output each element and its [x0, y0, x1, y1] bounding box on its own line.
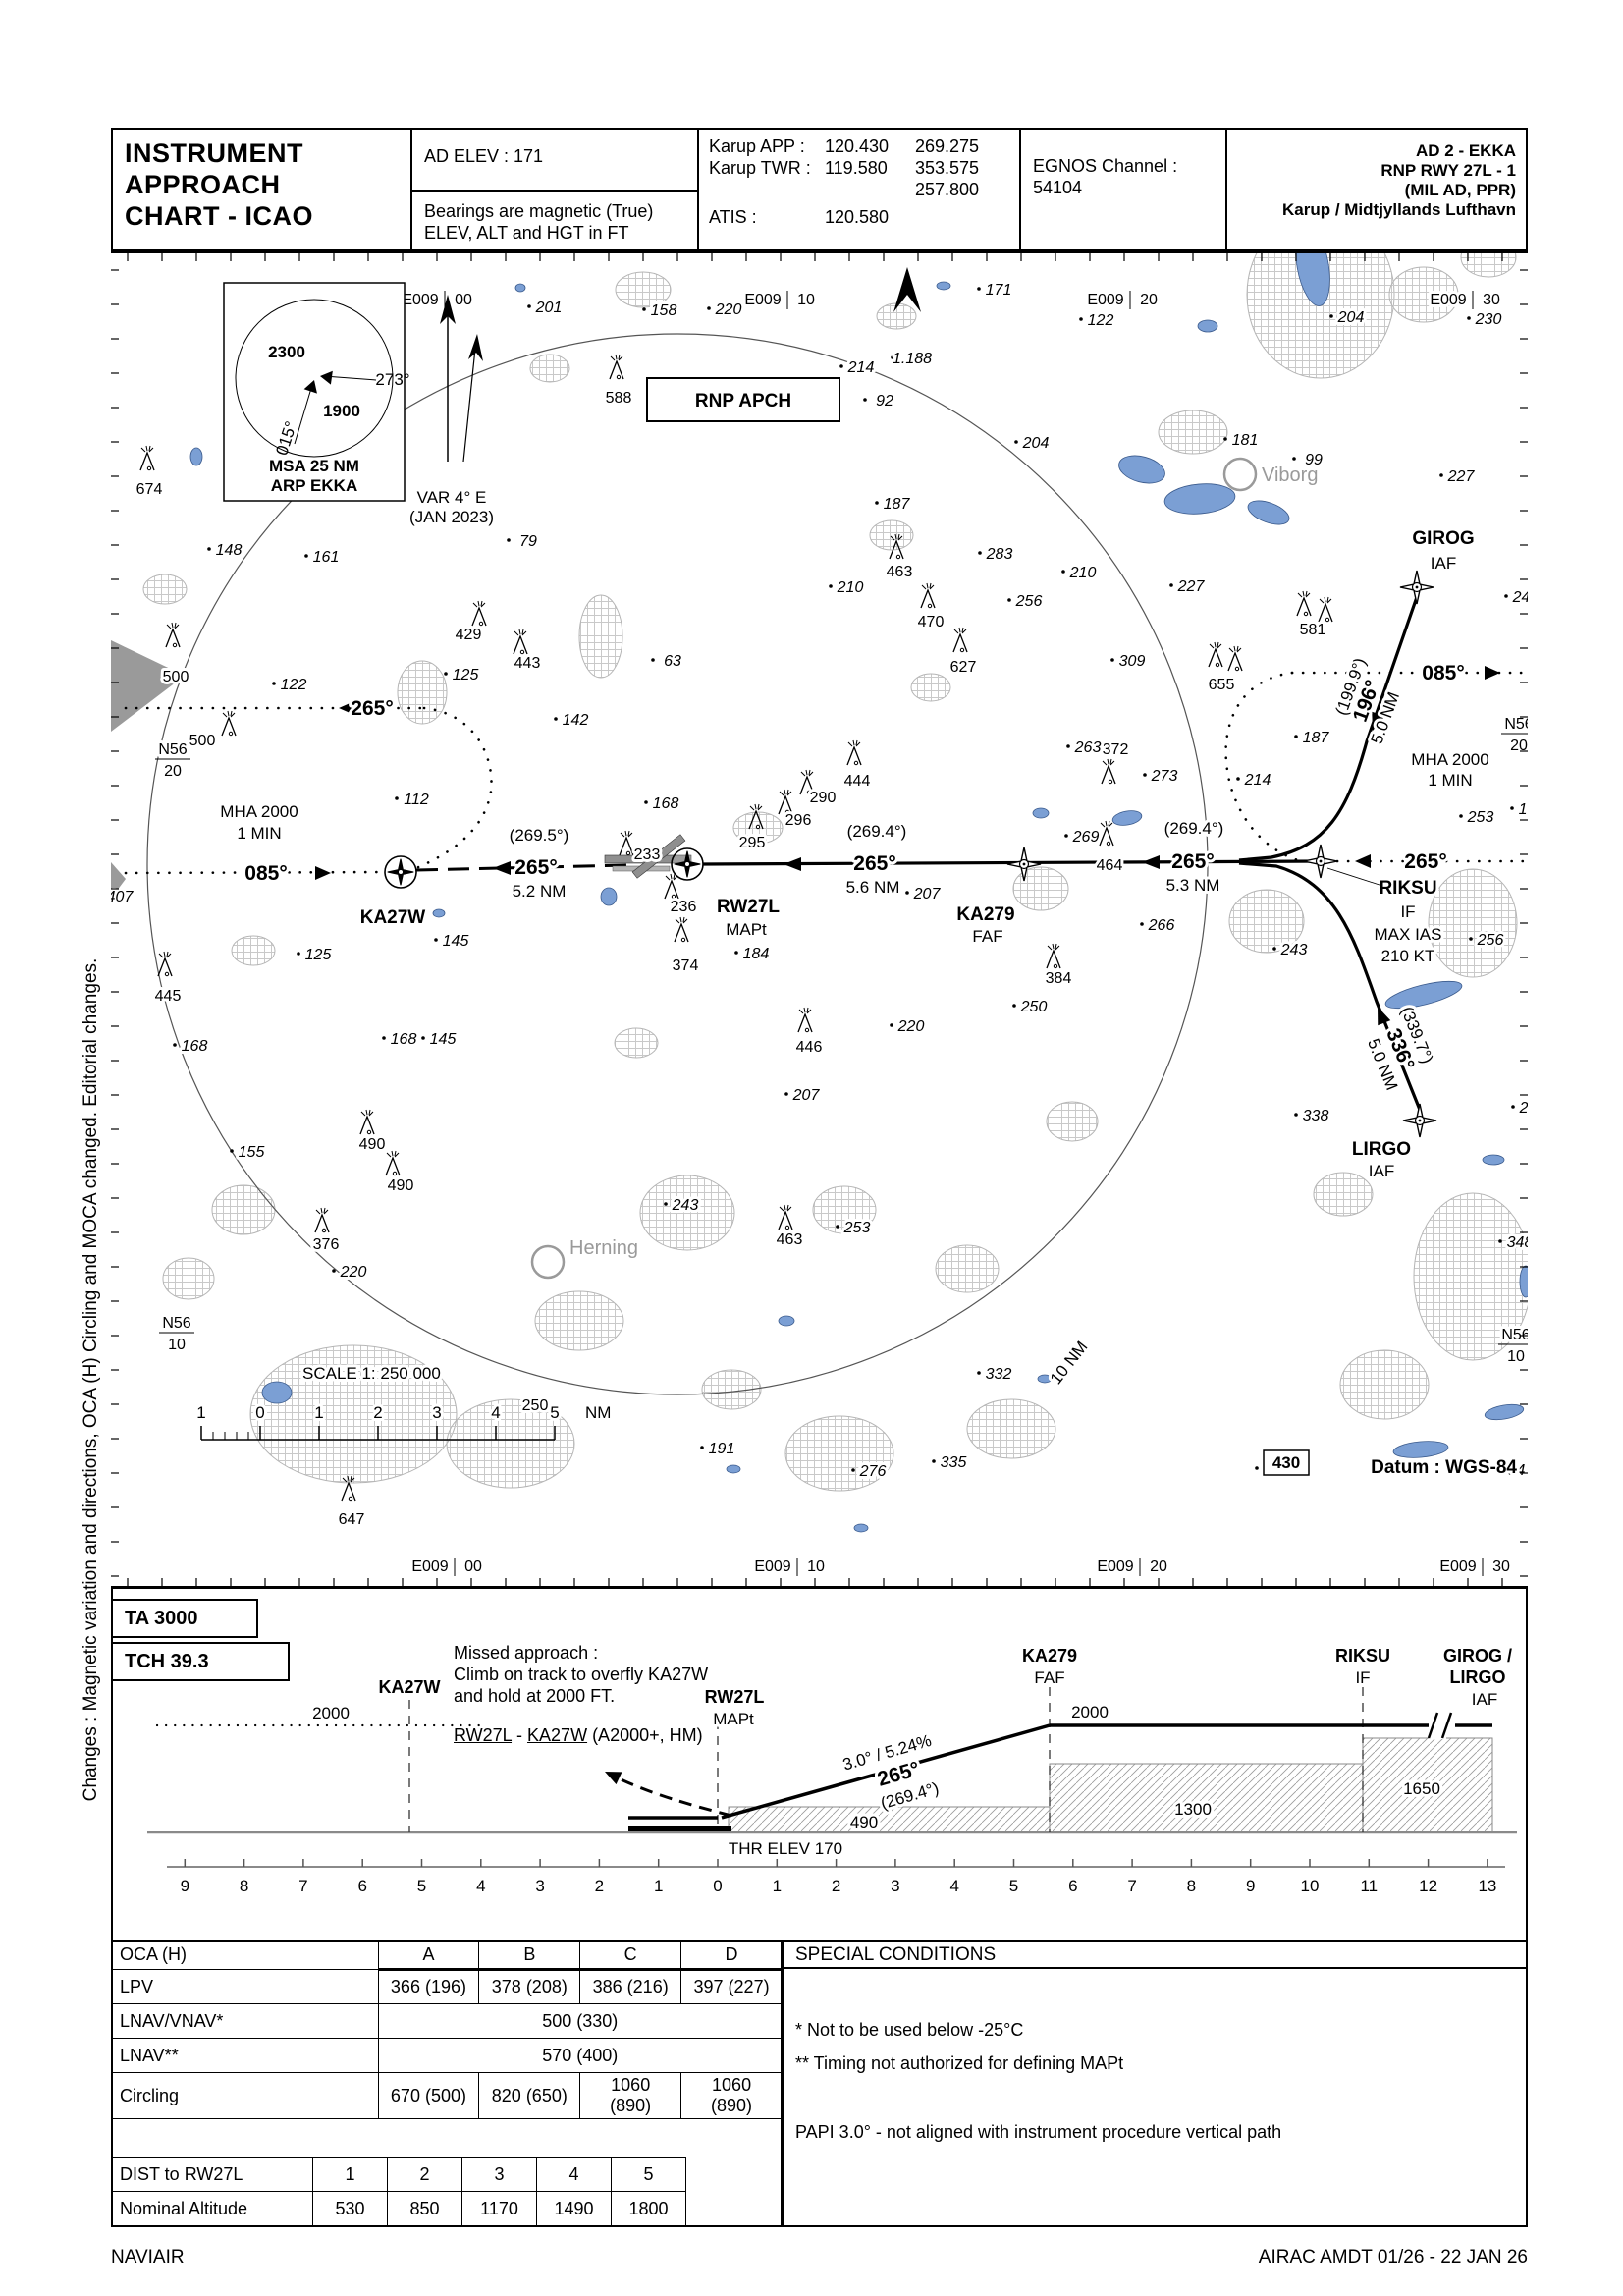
oca-lpv-b: 378 (208)	[479, 1970, 580, 2004]
spot-value: 171	[986, 282, 1012, 299]
spot-dot	[1140, 922, 1144, 926]
dist-4: 4	[537, 2158, 612, 2192]
special-conditions-title: SPECIAL CONDITIONS	[795, 1944, 996, 1966]
profile-fix: RW27L	[705, 1687, 765, 1707]
route-label: 265°	[351, 697, 393, 720]
dist-2: 2	[388, 2158, 462, 2192]
spot-value: 125	[305, 947, 332, 963]
urban-area	[398, 661, 447, 724]
spot-dot	[1061, 570, 1065, 574]
lake	[937, 282, 950, 290]
spot-value: 207	[792, 1087, 821, 1104]
route-label: 265°	[1171, 850, 1214, 873]
spot-value: 214	[847, 359, 875, 376]
urban-area	[163, 1258, 214, 1299]
nm-label: 11	[1360, 1877, 1378, 1895]
ident-line2: RNP RWY 27L - 1	[1227, 161, 1516, 181]
urban-area	[615, 1028, 658, 1058]
header-freq-cell: Karup APP :120.430269.275 Karup TWR :119…	[699, 128, 1021, 253]
spot-dot	[644, 800, 648, 804]
nm-label: 8	[1187, 1877, 1196, 1895]
scale-number: 3	[432, 1403, 441, 1422]
lake	[854, 1524, 868, 1532]
spot-dot	[1439, 473, 1443, 477]
spot-dot	[297, 952, 300, 956]
obstacle-elevation: 581	[1300, 622, 1326, 638]
dist-1: 1	[313, 2158, 388, 2192]
urban-area	[1314, 1173, 1373, 1216]
route-label: (269.4°)	[847, 822, 907, 841]
nm-label: 2	[595, 1877, 604, 1895]
urban-patch	[1340, 1350, 1429, 1419]
spot-value: 210	[1069, 565, 1097, 581]
msa-box: 23001900273°015°MSA 25 NMARP EKKA	[224, 283, 410, 501]
spot-value: 332	[986, 1366, 1012, 1383]
spot-value: 122	[281, 677, 307, 693]
urban-patch	[1047, 1102, 1098, 1141]
oca-circling-a: 670 (500)	[378, 2073, 479, 2119]
spot-value: 309	[1119, 653, 1146, 670]
lake	[1198, 320, 1217, 332]
nm-label: 3	[535, 1877, 544, 1895]
lake	[1033, 808, 1049, 818]
route-label: 265°	[853, 852, 895, 875]
scale-sub: 250	[522, 1397, 549, 1414]
spot-dot	[836, 1225, 839, 1229]
urban-area	[1429, 869, 1517, 977]
obstacle-elevation: 464	[1097, 857, 1123, 874]
profile-view: 49013001650KA27W2000RW27LMAPtKA279FAF200…	[111, 1588, 1528, 1940]
spot-value: 158	[651, 302, 677, 319]
app-freq-2: 269.275	[915, 136, 1005, 157]
twr-freq-2: 353.575	[915, 157, 1005, 179]
spot-value: 168	[182, 1038, 208, 1055]
msa-arp: ARP EKKA	[271, 476, 357, 495]
publisher: NAVIAIR	[111, 2247, 185, 2269]
spot-dot	[863, 398, 867, 402]
spot-dot	[734, 951, 738, 955]
oca-lpv-a: 366 (196)	[378, 1970, 479, 2004]
map-label: E009	[1087, 292, 1123, 308]
egnos-value: 54104	[1033, 177, 1225, 198]
spot-dot	[851, 1468, 855, 1472]
obstacle-elevation: 490	[359, 1136, 386, 1153]
spot-dot	[1510, 806, 1514, 810]
spot-value: 266	[1148, 917, 1175, 934]
datum-label: Datum : WGS-84	[1371, 1457, 1517, 1478]
spot-dot	[1294, 1113, 1298, 1117]
route-label: 1 MIN	[1428, 771, 1472, 790]
spot-dot	[173, 1043, 177, 1047]
obstacle-elevation: 295	[739, 835, 766, 851]
urban-patch	[143, 574, 187, 604]
spot-dot	[304, 554, 308, 558]
spot-dot	[1294, 735, 1298, 738]
msa-high: 2300	[268, 343, 305, 361]
nm-label: 9	[181, 1877, 189, 1895]
spot-value: 145	[430, 1031, 457, 1048]
nm-label: 4	[949, 1877, 958, 1895]
profile-fix: GIROG /	[1443, 1646, 1512, 1666]
nm-unit: NM	[1525, 1877, 1528, 1895]
oca-lnav-label: LNAV**	[112, 2039, 379, 2073]
spot-dot	[978, 551, 982, 555]
plan-view-map: ViborgHerningKA27WRW27LMAPtKA279FAFRIKSU…	[111, 253, 1528, 1588]
dist-label: DIST to RW27L	[112, 2158, 313, 2192]
spot-value: 122	[1088, 312, 1114, 329]
center-dot	[1419, 1120, 1422, 1122]
spot-value: 276	[859, 1463, 887, 1480]
dist-3: 3	[462, 2158, 537, 2192]
waypoint-role: IAF	[1431, 554, 1456, 573]
obstacle-elevation: 588	[606, 390, 632, 407]
spot-value: 187	[884, 496, 911, 513]
lon-label: E00920	[1087, 291, 1158, 309]
spot-dot	[1272, 947, 1276, 951]
obstacle-elevation: 463	[777, 1231, 803, 1248]
spot-value: 1.188	[893, 351, 932, 367]
urban-patch	[1314, 1173, 1373, 1216]
route-label: 085°	[244, 862, 287, 885]
spot-dot	[905, 891, 909, 895]
spot-value: 227	[1177, 578, 1206, 595]
waypoint-role: FAF	[972, 927, 1002, 946]
rnp-apch-label: RNP APCH	[695, 391, 791, 411]
ident-line1: AD 2 - EKKA	[1227, 141, 1516, 161]
special-note-2: ** Timing not authorized for defining MA…	[795, 2052, 1502, 2074]
spot-dot	[1007, 598, 1011, 602]
map-label: E009	[744, 292, 781, 308]
spot-dot	[1066, 744, 1070, 748]
header-egnos-cell: EGNOS Channel : 54104	[1021, 128, 1227, 253]
spot-dot	[444, 672, 448, 676]
missed-arrow-icon	[602, 1766, 622, 1784]
lon-label: E00910	[754, 1558, 825, 1576]
obstacle-elevation: 500	[189, 733, 216, 749]
oca-header-a: A	[378, 1941, 479, 1970]
ad-elev: AD ELEV : 171	[412, 128, 697, 167]
spot-dot	[230, 1149, 234, 1153]
spot-value: 99	[1305, 452, 1323, 468]
map-label: E009	[1430, 292, 1466, 308]
oca-circling-label: Circling	[112, 2073, 379, 2119]
oca-header-label: OCA (H)	[112, 1941, 379, 1970]
spot-dot	[527, 304, 531, 308]
center-dot	[1416, 586, 1419, 589]
route-label: 5.2 NM	[513, 882, 567, 901]
route-label: 5.6 NM	[846, 878, 900, 897]
spot-value: 184	[743, 946, 770, 962]
obstacle-elevation: 443	[514, 655, 541, 672]
urban-area	[1047, 1102, 1098, 1141]
profile-fix-role: IAF	[1472, 1690, 1497, 1709]
spot-elevation: 1.188	[891, 351, 932, 367]
spot-value: 191	[709, 1441, 735, 1457]
lon-label: E00920	[1097, 1558, 1167, 1576]
urban-patch	[1429, 869, 1517, 977]
spot-dot	[1169, 583, 1173, 587]
spot-elevation: 407	[111, 889, 134, 905]
header-bearings-cell: Bearings are magnetic (True) ELEV, ALT a…	[412, 192, 699, 253]
map-label: E009	[411, 1558, 448, 1575]
spot-dot	[1255, 1466, 1259, 1470]
oca-circling-b: 820 (650)	[479, 2073, 580, 2119]
spot-value: 79	[519, 533, 537, 550]
msa-low: 1900	[323, 402, 360, 420]
ident-line4: Karup / Midtjyllands Lufthavn	[1227, 200, 1516, 220]
spot-dot	[700, 1446, 704, 1449]
spot-dot	[1110, 658, 1114, 662]
riksu-note: MAX IAS	[1375, 925, 1442, 944]
map-label: 20	[1140, 292, 1158, 308]
spot-dot	[1498, 1239, 1502, 1243]
waypoint-name: KA279	[956, 904, 1014, 925]
lon-label: E00930	[1439, 1558, 1510, 1576]
obstacle-elevation: 444	[844, 773, 871, 790]
spot-value: 269	[1072, 829, 1100, 846]
nm-label: 5	[1009, 1877, 1018, 1895]
nm-label: 7	[298, 1877, 307, 1895]
route-label: (269.5°)	[510, 826, 569, 845]
nm-label: 8	[240, 1877, 248, 1895]
spot-dot	[829, 584, 833, 588]
spot-dot	[875, 501, 879, 505]
var-note: (JAN 2023)	[409, 508, 494, 526]
lon-label: E00910	[744, 291, 815, 309]
atis-freq: 120.580	[825, 206, 915, 228]
thr-elev: THR ELEV 170	[729, 1839, 842, 1858]
spot-value: 243	[1519, 1100, 1528, 1117]
spot-dot	[1504, 594, 1508, 598]
oca-circling-c: 1060 (890)	[580, 2073, 681, 2119]
msl-430: 430	[1272, 1453, 1300, 1472]
map-label: 00	[455, 292, 472, 308]
map-label: 30	[1492, 1558, 1510, 1575]
var-note: VAR 4° E	[417, 488, 487, 507]
spot-value: 168	[391, 1031, 417, 1048]
urban-patch	[212, 1185, 275, 1234]
spot-value: 142	[563, 712, 589, 729]
obstacle-elevation: 296	[785, 812, 812, 829]
urban-patch	[911, 674, 950, 701]
msa-bearing: 273°	[375, 370, 409, 389]
header-elev-cell: AD ELEV : 171	[412, 128, 699, 192]
waypoint-name: RW27L	[717, 897, 780, 917]
airac-amendment: AIRAC AMDT 01/26 - 22 JAN 26	[1037, 2247, 1528, 2269]
header-title-cell: INSTRUMENT APPROACH CHART - ICAO	[111, 128, 412, 253]
lon-label: E00900	[402, 291, 472, 309]
spot-dot	[434, 938, 438, 942]
spot-value: 210	[837, 579, 864, 596]
map-label: N56	[162, 1315, 190, 1332]
nm-label: 2	[832, 1877, 840, 1895]
header-ident-cell: AD 2 - EKKA RNP RWY 27L - 1 (MIL AD, PPR…	[1227, 128, 1528, 253]
spot-dot	[207, 547, 211, 551]
oca-lpv-label: LPV	[112, 1970, 379, 2004]
scale-number: 0	[255, 1403, 264, 1422]
spot-value: 220	[897, 1018, 925, 1035]
waypoint-name: RIKSU	[1379, 878, 1436, 899]
spot-value: 407	[111, 889, 134, 905]
obstacle-elevation: 674	[136, 481, 163, 498]
spot-value: 250	[1020, 999, 1048, 1015]
spot-dot	[784, 1092, 788, 1096]
spot-dot	[1459, 814, 1463, 818]
obstacle-elevation: 233	[634, 847, 661, 863]
moc-value: 1300	[1174, 1800, 1212, 1819]
urban-patch	[870, 520, 913, 550]
nm-label: 0	[713, 1877, 722, 1895]
spot-dot	[932, 1459, 936, 1463]
oca-lnavvnav-label: LNAV/VNAV*	[112, 2004, 379, 2039]
riksu-note: 210 KT	[1381, 947, 1435, 965]
twr-freq-3: 257.800	[915, 179, 1005, 200]
oca-header-b: B	[479, 1941, 580, 1970]
urban-patch	[1013, 867, 1068, 910]
profile-fix-role: FAF	[1034, 1668, 1064, 1687]
alt-3: 1170	[462, 2192, 537, 2226]
map-label: E009	[754, 1558, 790, 1575]
profile-fix: RIKSU	[1335, 1646, 1390, 1666]
oca-lpv-c: 386 (216)	[580, 1970, 681, 2004]
approach-chart-page: Changes : Magnetic variation and directi…	[0, 0, 1623, 2296]
waypoint-name: GIROG	[1412, 528, 1474, 549]
spot-dot	[977, 1371, 981, 1375]
alt-1: 530	[313, 2192, 388, 2226]
urban-patch	[967, 1399, 1055, 1458]
spot-value: 253	[1467, 809, 1494, 826]
spot-value: 201	[535, 300, 563, 316]
urban-area	[535, 1291, 623, 1350]
map-label: 30	[1483, 292, 1500, 308]
app-freq-1: 120.430	[825, 136, 915, 157]
obstacle-elevation: 236	[671, 899, 697, 915]
spot-dot	[421, 1036, 425, 1040]
msa-title: MSA 25 NM	[269, 457, 359, 475]
urban-area	[143, 574, 187, 604]
spot-value: 335	[941, 1454, 967, 1471]
spot-dot	[890, 1023, 893, 1027]
profile-fix: KA279	[1022, 1646, 1077, 1666]
nm-label: 13	[1478, 1877, 1496, 1895]
waypoint-role: MAPt	[726, 920, 767, 939]
spot-value: 243	[1512, 589, 1528, 606]
scale-number: 2	[373, 1403, 382, 1422]
spot-value: 263	[1074, 739, 1102, 756]
urban-area	[212, 1185, 275, 1234]
egnos-label: EGNOS Channel :	[1033, 155, 1225, 177]
urban-area	[579, 595, 622, 678]
urban-area	[870, 520, 913, 550]
map-label: 10	[168, 1337, 186, 1353]
twr-freq-1: 119.580	[825, 157, 915, 179]
scale-number: 1	[196, 1403, 205, 1422]
urban-patch	[1159, 410, 1227, 454]
urban-area	[936, 1245, 999, 1292]
lon-label: E00900	[411, 1558, 482, 1576]
obstacle-elevation: 446	[796, 1039, 823, 1056]
profile-fix: KA27W	[378, 1677, 440, 1697]
urban-patch	[579, 595, 622, 678]
obstacle-elevation: 372	[1103, 741, 1129, 758]
obstacle-elevation: 500	[163, 669, 189, 685]
urban-patch	[232, 936, 275, 965]
spot-value: 92	[876, 393, 893, 410]
lake	[779, 1316, 794, 1326]
spot-value: 256	[1477, 932, 1504, 949]
nm-label: 7	[1127, 1877, 1136, 1895]
missed-curve	[617, 1777, 731, 1816]
lake	[515, 284, 525, 292]
dist-table: DIST to RW27L 1 2 3 4 5 Nominal Altitude…	[111, 2157, 686, 2226]
lake	[727, 1465, 740, 1473]
spot-dot	[332, 1269, 336, 1273]
spot-dot	[507, 538, 511, 542]
spot-value: 348	[1507, 1234, 1528, 1251]
nm-label: 1	[773, 1877, 782, 1895]
special-note-3: PAPI 3.0° - not aligned with instrument …	[795, 2121, 1502, 2143]
alt-2000-left: 2000	[312, 1704, 350, 1722]
special-note-1: * Not to be used below -25°C	[795, 2019, 1502, 2041]
moc-box	[1050, 1764, 1363, 1832]
obstacle-elevation: 655	[1209, 677, 1235, 693]
title-line2: APPROACH	[125, 169, 410, 200]
spot-dot	[395, 796, 399, 800]
spot-value: 155	[239, 1144, 265, 1161]
lon-label: E00930	[1430, 291, 1500, 309]
urban-patch	[163, 1258, 214, 1299]
spot-dot	[1292, 457, 1296, 461]
spot-value: 191	[1519, 801, 1528, 818]
spot-value: 63	[664, 653, 681, 670]
waypoint-name: KA27W	[360, 907, 426, 928]
waypoint-role: IF	[1400, 902, 1415, 921]
spot-dot	[272, 682, 276, 685]
oca-table: OCA (H) A B C D LPV 366 (196) 378 (208) …	[111, 1940, 783, 2119]
nm-label: 6	[1068, 1877, 1077, 1895]
obstacle-elevation: 470	[918, 614, 945, 630]
spot-value: 187	[1303, 730, 1330, 746]
urban-area	[967, 1399, 1055, 1458]
nm-label: 12	[1419, 1877, 1437, 1895]
spot-value: 204	[1337, 309, 1365, 326]
spot-value: 181	[1232, 432, 1259, 449]
map-label: 10	[1507, 1348, 1525, 1365]
lake	[601, 888, 617, 905]
urban-patch	[936, 1245, 999, 1292]
lake	[433, 909, 445, 917]
spot-dot	[1467, 316, 1471, 320]
special-title-underline	[783, 1967, 1528, 1969]
spot-dot	[1329, 314, 1333, 318]
map-label: 20	[164, 763, 182, 780]
lake	[1483, 1155, 1504, 1165]
spot-value: 220	[715, 301, 742, 318]
obstacle-elevation: 429	[456, 627, 482, 643]
route-label: MHA 2000	[220, 802, 298, 821]
oca-circling-d: 1060 (890)	[681, 2073, 783, 2119]
urban-area	[1340, 1350, 1429, 1419]
spot-dot	[1223, 437, 1227, 441]
obstacle-elevation: 384	[1046, 970, 1072, 987]
scale-number: 1	[314, 1403, 323, 1422]
spot-dot	[1236, 777, 1240, 781]
oca-lnav-value: 570 (400)	[378, 2039, 782, 2073]
scale-number: 4	[491, 1403, 500, 1422]
center-dot	[1023, 863, 1026, 866]
urban-area	[530, 355, 569, 382]
route-label: (269.4°)	[1164, 819, 1224, 838]
